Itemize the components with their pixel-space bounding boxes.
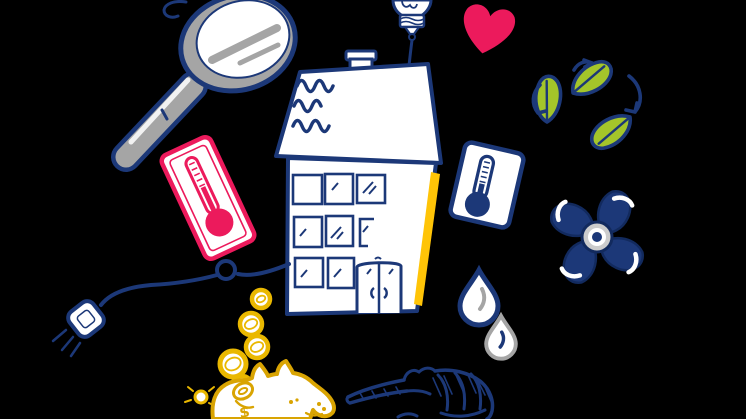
- hanging-squiggle: [164, 1, 186, 17]
- recycling-leaves-icon: [528, 58, 640, 152]
- water-drops-icon: [460, 270, 516, 359]
- coin: [240, 313, 262, 335]
- house-window: [325, 174, 353, 204]
- house-window: [293, 175, 322, 204]
- house-window: [294, 217, 322, 247]
- house-window: [295, 258, 323, 287]
- coin-sparkle: [185, 387, 215, 406]
- heart-icon: [457, 1, 517, 58]
- thermometer-card-cold-icon: [449, 141, 525, 229]
- coin: [220, 351, 246, 377]
- house-window: [328, 258, 354, 288]
- magnifying-glass-icon: [126, 0, 307, 157]
- plug-prongs: [53, 330, 80, 356]
- coin: [246, 336, 268, 358]
- energy-home-illustration: $: [0, 0, 746, 419]
- illustration-canvas: $: [0, 0, 746, 419]
- house-window: [357, 175, 385, 203]
- pointing-hand-icon: [347, 368, 493, 419]
- house-door: [357, 258, 401, 314]
- thermometer-card-hot-icon: [159, 135, 256, 261]
- house-icon: [276, 51, 441, 314]
- house-window: [326, 216, 353, 246]
- fan-icon: [546, 186, 648, 288]
- water-drop-large: [460, 270, 498, 325]
- leaf: [586, 111, 637, 152]
- coin: [252, 290, 270, 308]
- light-bulb-icon: [393, 0, 431, 66]
